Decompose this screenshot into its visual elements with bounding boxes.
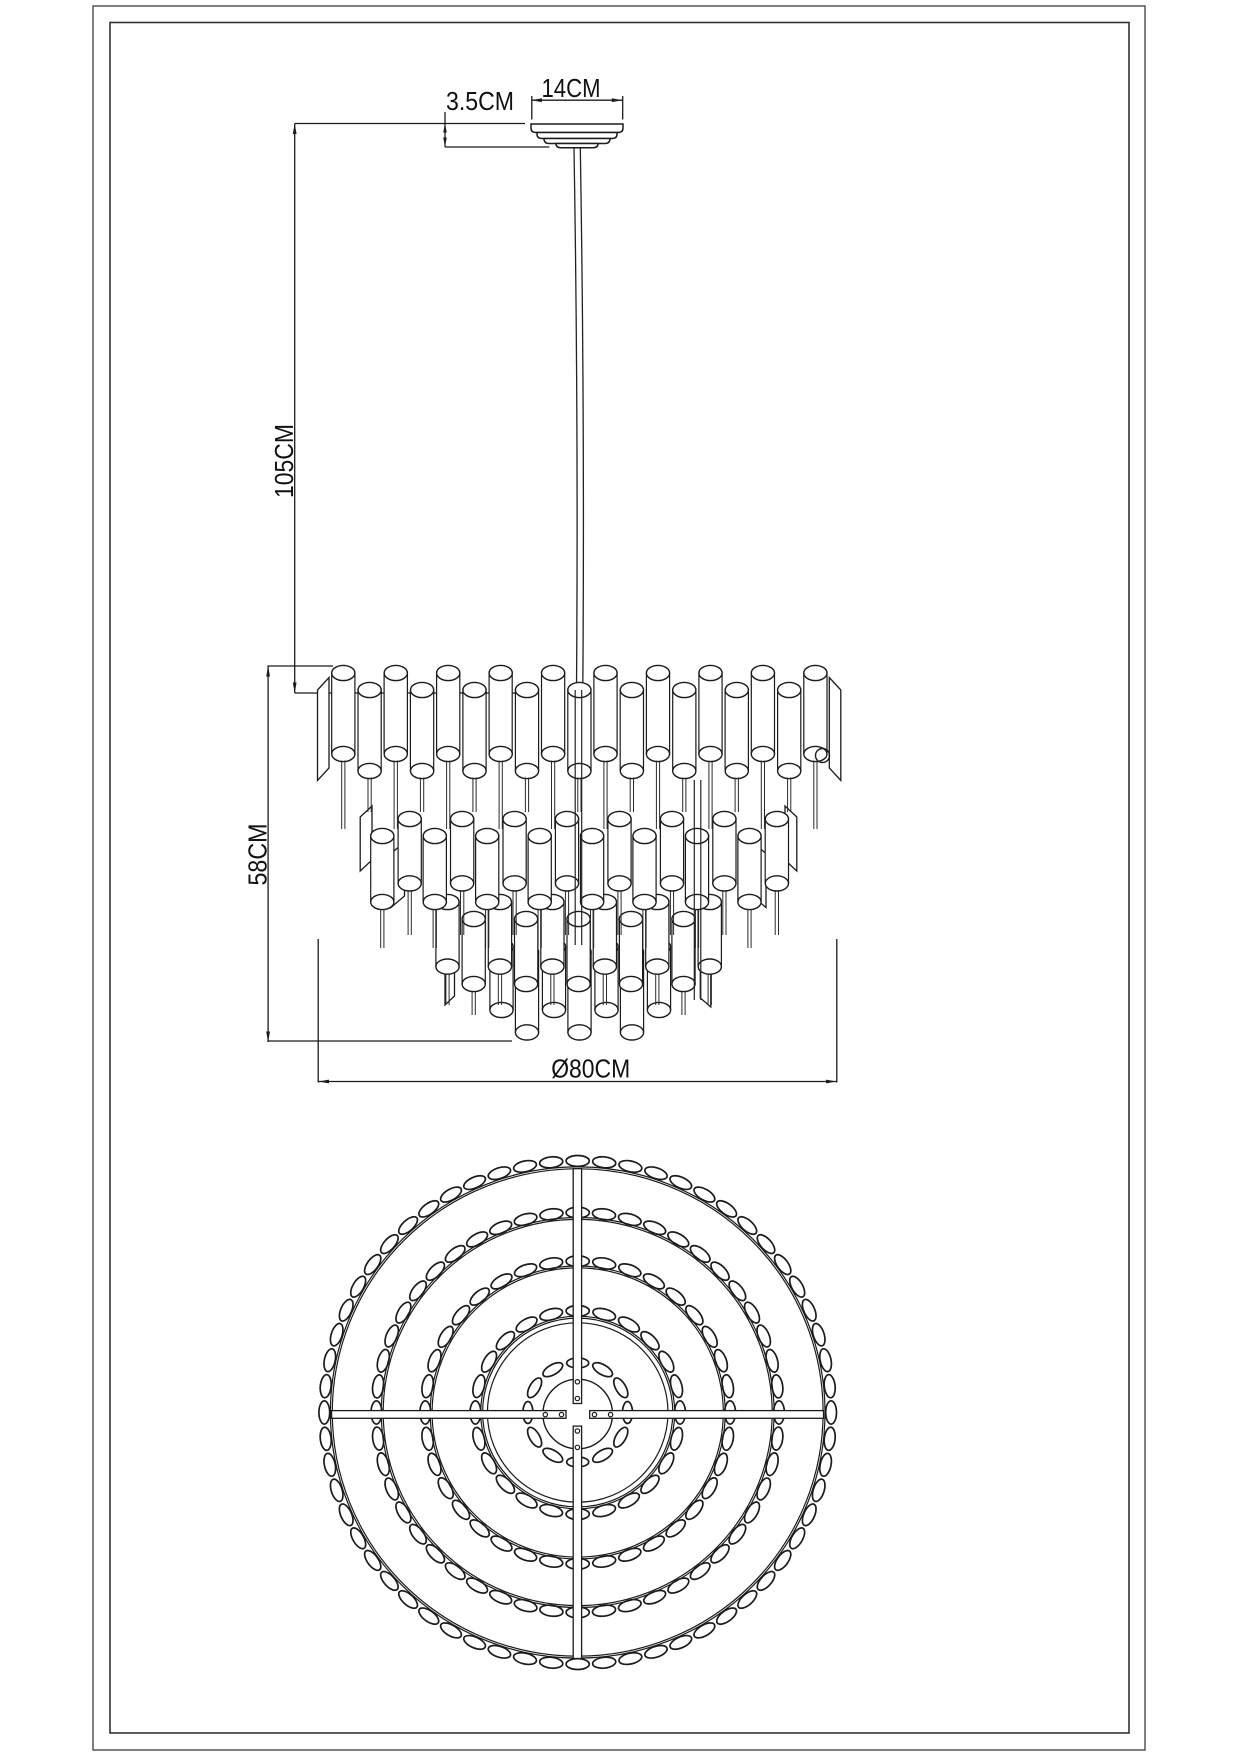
- svg-text:Ø80CM: Ø80CM: [551, 1054, 630, 1084]
- svg-text:14CM: 14CM: [542, 73, 601, 103]
- svg-text:3.5CM: 3.5CM: [446, 86, 514, 116]
